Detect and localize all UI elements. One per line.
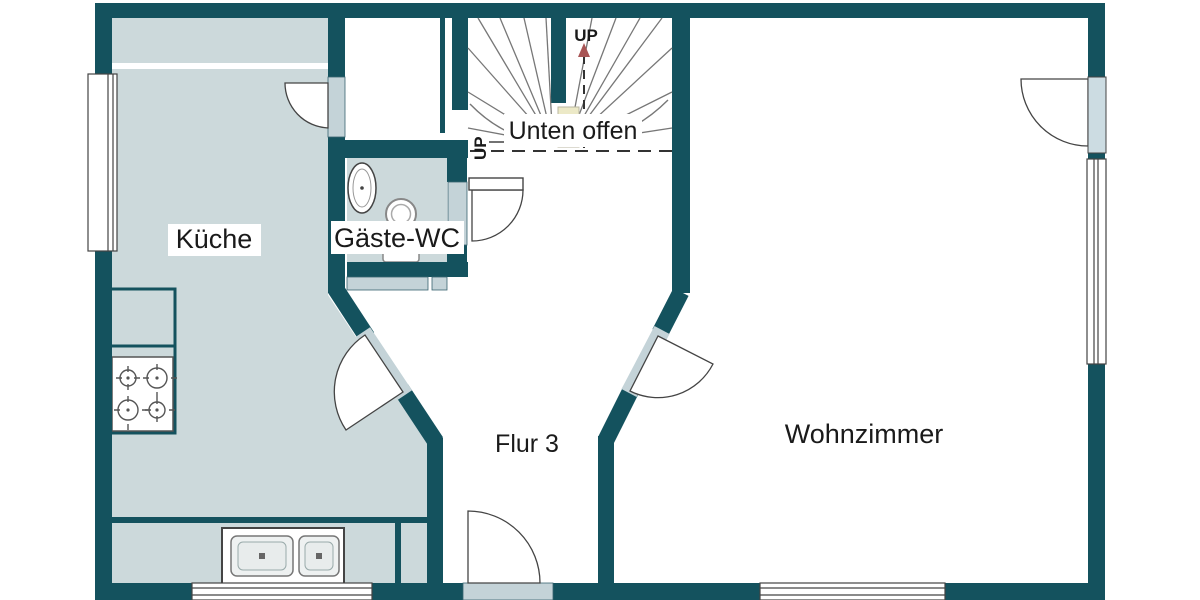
wall-outer-right [1088,3,1105,77]
door-leaf-wc [469,178,523,190]
wall-outer-bottom [95,583,192,600]
kitchen-label: Küche [176,224,253,254]
stair-up-label-top: UP [574,26,598,45]
floor-plan: Küche Gäste-WC Unten offen Flur 3 Wohnzi… [0,0,1200,600]
double-basin-sink-icon [222,528,344,584]
window-living-south [760,583,945,600]
wall-outer-left [95,3,112,74]
open-below-label: Unten offen [509,117,638,145]
kitchen-counter-line-bottom [112,517,427,523]
wall-kitchen-east [328,137,345,293]
window-kitchen-south [192,583,372,600]
wall-outer-left [95,251,112,600]
wall-wc-east [447,158,467,182]
wall-outer-bottom [553,583,760,600]
stove-4-burner-icon [112,357,177,431]
hallway-label: Flur 3 [495,430,559,458]
entrance-threshold [463,583,553,600]
wall-outer-right [1088,364,1105,600]
wall-hall-west [427,438,443,583]
window-kitchen-west [88,74,117,251]
kitchen-counter-box [108,289,175,346]
wall-stair-void-edge [440,18,445,133]
wall-outer-bottom [372,583,463,600]
wc-ledge [347,277,428,290]
wall-wc-south [347,262,468,277]
wall-stair-east [672,18,690,293]
window-living-east [1087,159,1106,364]
wc-ledge [432,277,447,290]
door-leaf-living-east [1088,77,1106,153]
washbasin-icon [348,163,376,213]
wall-kitchen-east [328,18,345,77]
wall-hall-east [598,436,614,583]
wall-stair-center-stub [551,18,566,103]
wall-outer-top [95,3,1105,18]
kitchen-counter-divider [395,523,401,583]
door-opening-kitchen-north [328,77,345,137]
floor-plan-page: Küche Gäste-WC Unten offen Flur 3 Wohnzi… [0,0,1200,600]
living-room-label: Wohnzimmer [785,419,944,449]
guest-wc-label: Gäste-WC [334,223,460,253]
wall-outer-bottom [945,583,1105,600]
stair-up-label-side: UP [471,136,490,160]
wall-wc-north [328,140,468,158]
kitchen-counter-line-top [112,63,328,69]
wall-stair-west [452,18,468,110]
